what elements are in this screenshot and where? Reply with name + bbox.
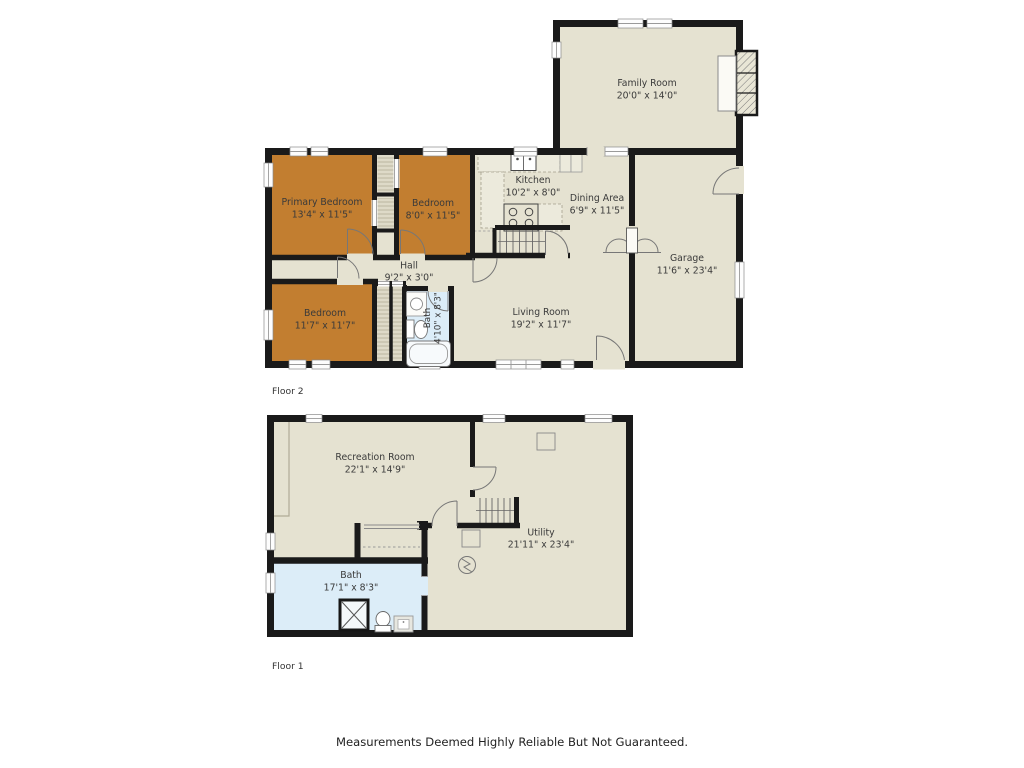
floor1-plan: Recreation Room 22'1" x 14'9" Utility 21… [266, 415, 633, 673]
room-label-recreation-room: Recreation Room [335, 452, 414, 463]
room-label-dining-area: Dining Area [570, 193, 624, 204]
fireplace [718, 51, 757, 115]
closet-hatch [393, 286, 404, 365]
faucet-dot [403, 621, 405, 623]
room-dims-family-room: 20'0" x 14'0" [617, 91, 678, 102]
room-label-bedroom2: Bedroom [412, 198, 454, 209]
room-dims-living-room: 19'2" x 11'7" [511, 320, 572, 331]
room-label-garage: Garage [670, 253, 704, 264]
room-dims-bedroom2: 8'0" x 11'5" [406, 211, 461, 222]
room-label-bedroom3: Bedroom [304, 308, 346, 319]
disclaimer-text: Measurements Deemed Highly Reliable But … [336, 735, 688, 749]
toilet-tank-floor1 [375, 626, 391, 633]
room-label-primary-bedroom: Primary Bedroom [282, 197, 363, 208]
room-dims-recreation-room: 22'1" x 14'9" [345, 465, 406, 476]
room-dims-kitchen: 10'2" x 8'0" [506, 188, 561, 199]
room-dims-bath1: 17'1" x 8'3" [324, 583, 379, 594]
room-label-kitchen: Kitchen [516, 175, 551, 186]
toilet-floor1 [376, 612, 390, 627]
floor2-plan: Family Room 20'0" x 14'0" Kitchen 10'2" … [264, 19, 757, 397]
bath2-toilet-tank [407, 320, 415, 338]
room-dims-bedroom3: 11'7" x 11'7" [295, 321, 356, 332]
room-dims-hall: 9'2" x 3'0" [385, 273, 434, 284]
garage-entry-door-slab [627, 228, 638, 253]
utility-box [462, 530, 480, 547]
closet-hatch [378, 155, 395, 192]
room-label-family-room: Family Room [617, 78, 676, 89]
room-label-hall: Hall [400, 261, 418, 272]
floor2-label: Floor 2 [272, 386, 304, 397]
electrical-panel-icon [459, 557, 476, 574]
room-label-utility: Utility [527, 528, 555, 539]
floorplan-canvas: Family Room 20'0" x 14'0" Kitchen 10'2" … [0, 0, 1024, 768]
utility-box [537, 433, 555, 450]
kitchen-appliance [560, 153, 582, 172]
closet-hatch [378, 198, 395, 228]
room-label-living-room: Living Room [512, 307, 569, 318]
floorplan-drawing: Family Room 20'0" x 14'0" Kitchen 10'2" … [0, 0, 1024, 768]
room-label-bath2: Bath [423, 308, 433, 328]
floor1-label: Floor 1 [272, 661, 304, 672]
room-dims-primary-bedroom: 13'4" x 11'5" [292, 210, 353, 221]
kitchen-sink [511, 155, 536, 171]
closet-hatch [377, 286, 390, 365]
room-dims-utility: 21'11" x 23'4" [508, 540, 574, 551]
room-label-bath1: Bath [340, 570, 362, 581]
sink-basin-floor1 [398, 620, 409, 630]
room-dims-garage: 11'6" x 23'4" [657, 266, 718, 277]
room-dims-dining-area: 6'9" x 11'5" [570, 206, 625, 217]
room-dims-bath2: 4'10" x 8'3" [434, 292, 444, 344]
bath2-sink [411, 298, 423, 310]
